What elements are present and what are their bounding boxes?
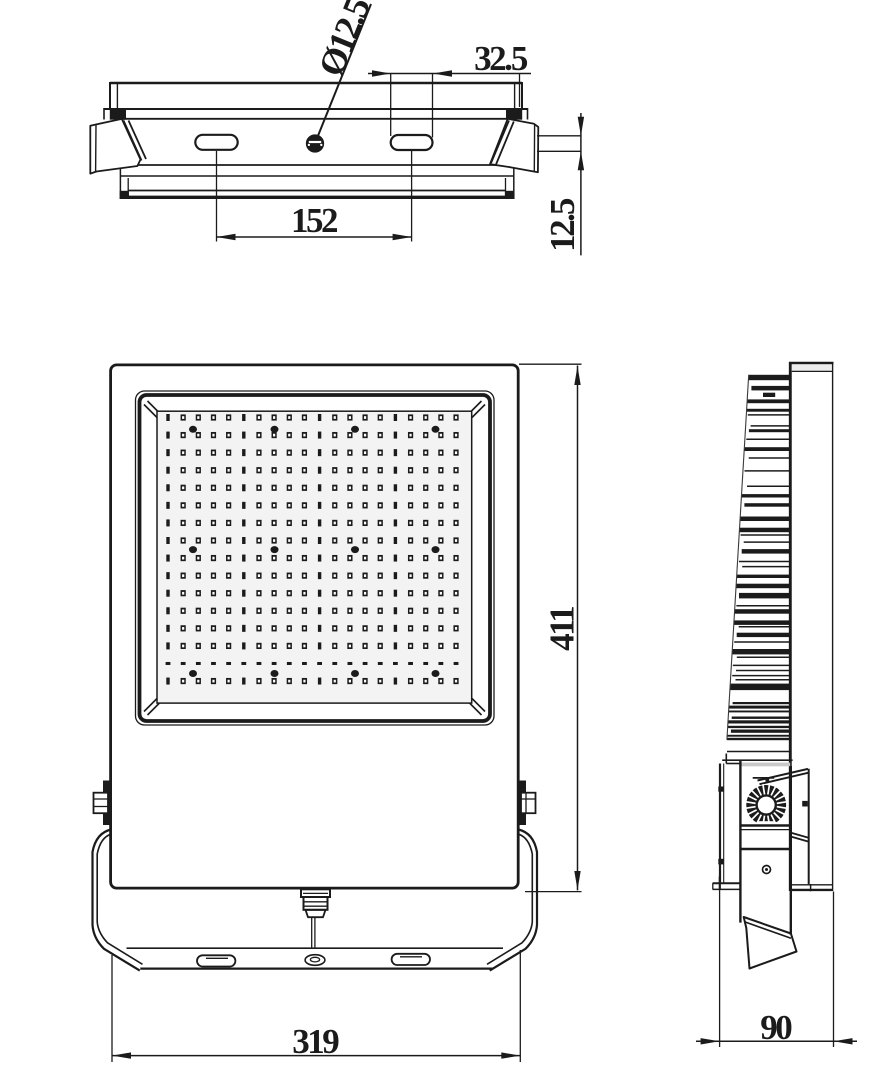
svg-text:411: 411	[543, 607, 582, 651]
svg-text:Ø12. 5: Ø12. 5	[311, 0, 378, 82]
svg-text:152: 152	[291, 201, 337, 240]
svg-text:32. 5: 32. 5	[474, 39, 528, 78]
svg-text:319: 319	[292, 1022, 339, 1061]
svg-text:12. 5: 12. 5	[543, 198, 582, 252]
svg-text:90: 90	[760, 1008, 792, 1047]
